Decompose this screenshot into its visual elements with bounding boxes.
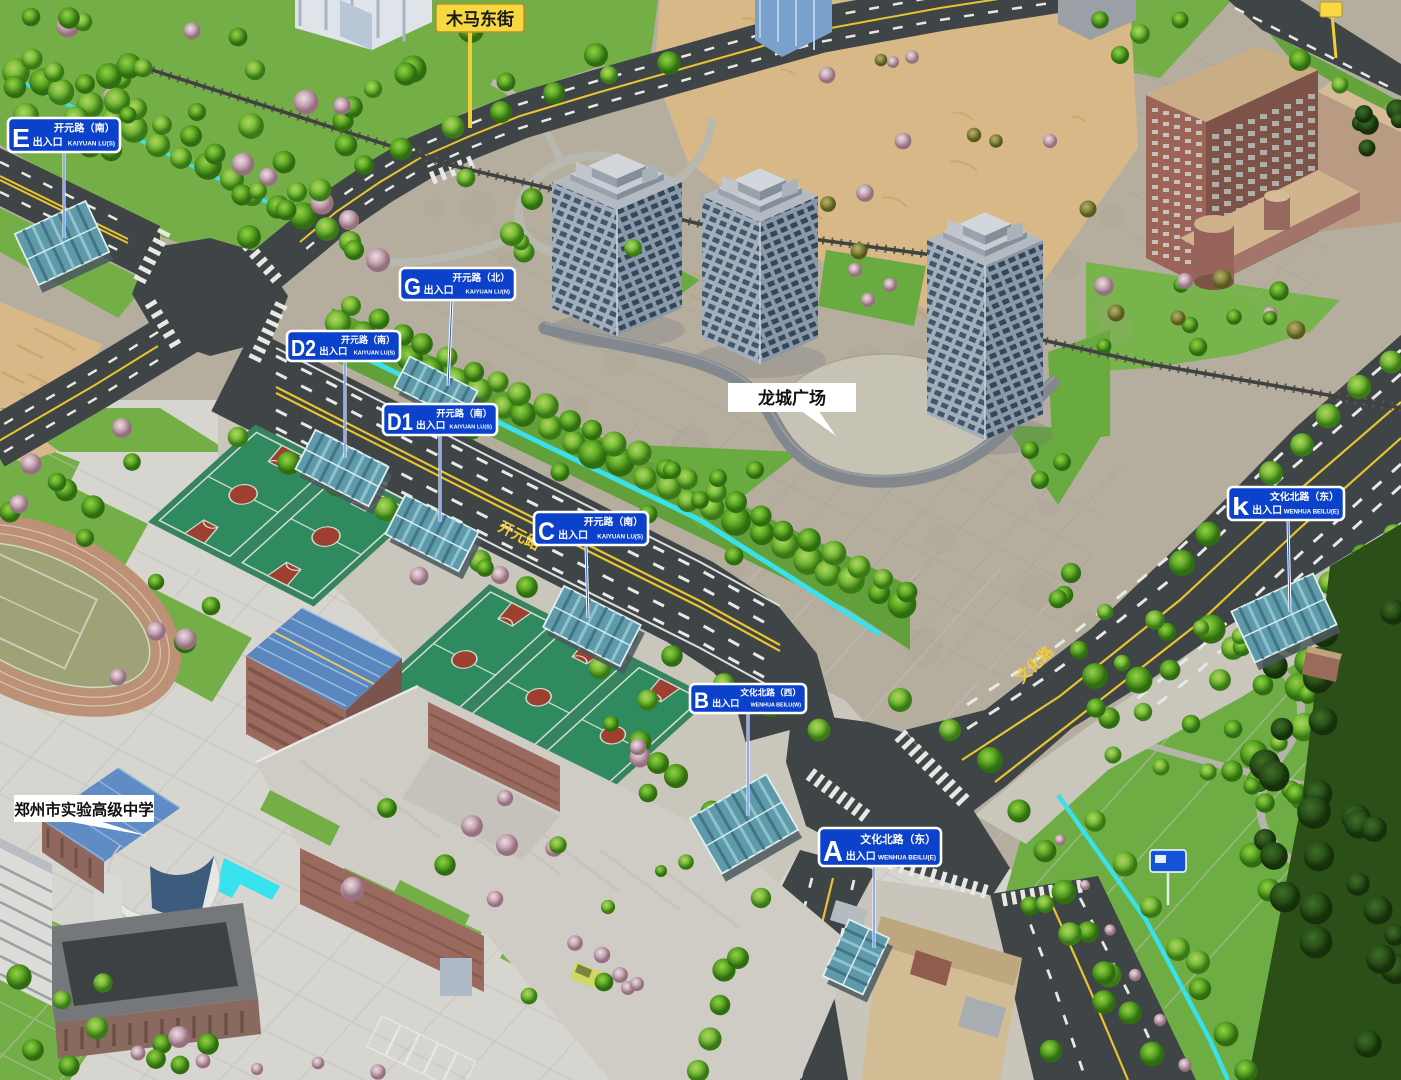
svg-text:开元路（南）: 开元路（南） bbox=[54, 122, 115, 135]
svg-text:开元路（北）: 开元路（北） bbox=[452, 272, 510, 284]
svg-text:KAIYUAN LU(S): KAIYUAN LU(S) bbox=[354, 351, 395, 357]
svg-text:出入口: 出入口 bbox=[846, 850, 876, 863]
svg-text:龙城广场: 龙城广场 bbox=[757, 388, 826, 408]
svg-text:k: k bbox=[1232, 493, 1249, 521]
svg-text:KAIYUAN LU(S): KAIYUAN LU(S) bbox=[68, 141, 115, 148]
svg-text:开元路（南）: 开元路（南） bbox=[436, 407, 492, 418]
svg-text:C: C bbox=[538, 518, 555, 546]
svg-text:出入口: 出入口 bbox=[319, 346, 347, 357]
svg-text:B: B bbox=[694, 688, 709, 713]
svg-text:出入口: 出入口 bbox=[558, 529, 588, 542]
svg-text:G: G bbox=[404, 274, 421, 301]
svg-text:郑州市实验高级中学: 郑州市实验高级中学 bbox=[14, 800, 154, 819]
svg-text:KAIYUAN LU(S): KAIYUAN LU(S) bbox=[449, 425, 492, 431]
svg-text:木马东街: 木马东街 bbox=[445, 9, 514, 29]
svg-text:出入口: 出入口 bbox=[33, 136, 63, 149]
svg-text:开元路（南）: 开元路（南） bbox=[341, 334, 395, 345]
svg-text:KAIYUAN LU(N): KAIYUAN LU(N) bbox=[465, 290, 510, 296]
svg-text:出入口: 出入口 bbox=[424, 284, 454, 297]
svg-text:KAIYUAN LU(S): KAIYUAN LU(S) bbox=[597, 534, 643, 541]
svg-text:WENHUA BEILU(E): WENHUA BEILU(E) bbox=[1284, 509, 1339, 516]
svg-text:WENHUA BEILU(E): WENHUA BEILU(E) bbox=[878, 855, 936, 862]
svg-text:开元路（南）: 开元路（南） bbox=[584, 515, 643, 528]
svg-text:WENHUA BEILU(W): WENHUA BEILU(W) bbox=[751, 703, 802, 709]
svg-text:A: A bbox=[823, 836, 843, 868]
svg-text:文化北路（东）: 文化北路（东） bbox=[860, 832, 936, 846]
svg-text:D2: D2 bbox=[291, 335, 316, 361]
svg-text:出入口: 出入口 bbox=[712, 698, 739, 709]
svg-text:出入口: 出入口 bbox=[416, 419, 445, 432]
svg-text:E: E bbox=[12, 123, 30, 153]
svg-text:文化北路（东）: 文化北路（东） bbox=[1270, 490, 1339, 503]
svg-text:D1: D1 bbox=[387, 409, 413, 436]
svg-text:出入口: 出入口 bbox=[1252, 504, 1282, 517]
svg-text:文化北路（西）: 文化北路（西） bbox=[740, 687, 801, 698]
